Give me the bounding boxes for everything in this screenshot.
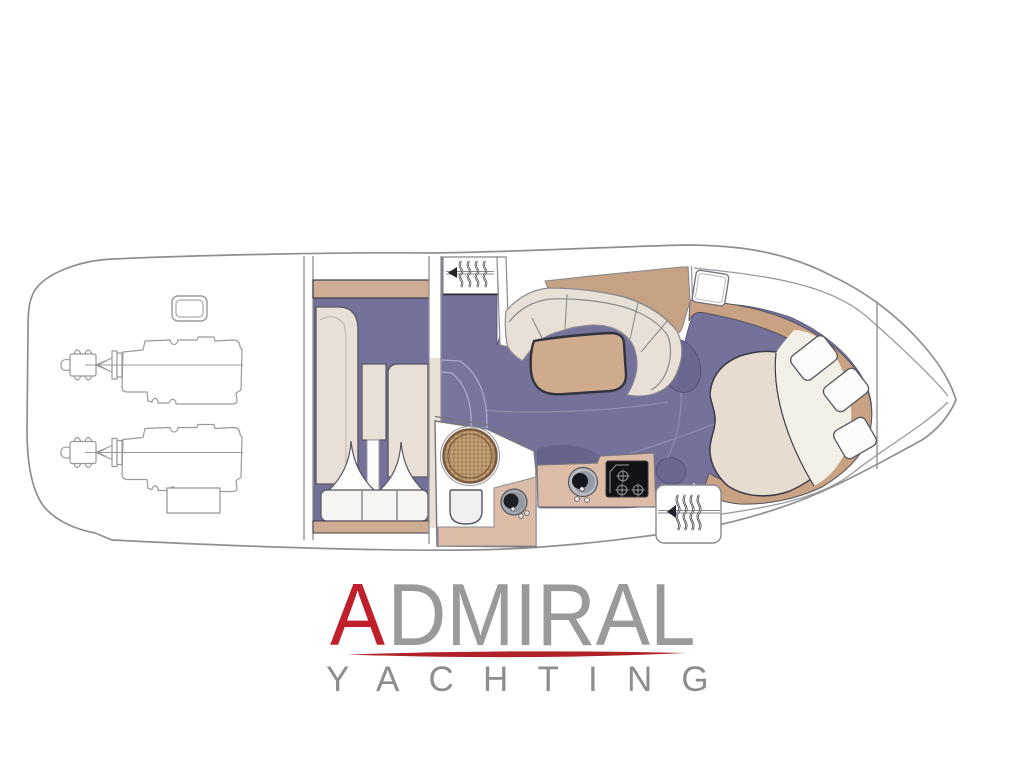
svg-text:DMIRAL: DMIRAL	[388, 565, 696, 664]
svg-text:A: A	[330, 565, 385, 664]
svg-text:YACHTING: YACHTING	[326, 660, 738, 699]
